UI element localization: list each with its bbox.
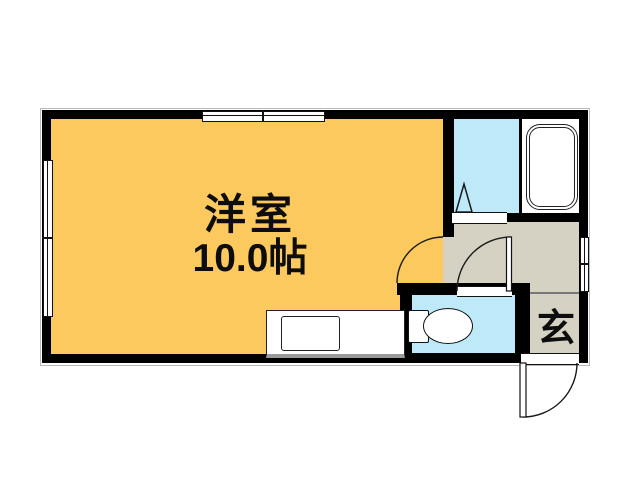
floor-plan: 洋室 10.0帖 玄 (0, 0, 640, 480)
bathroom-door-opening (452, 212, 507, 224)
bathtub-rim (529, 127, 575, 207)
window-top (202, 111, 325, 122)
entrance-door-leaf (520, 363, 526, 417)
window-glass-line (584, 238, 585, 291)
kitchen-sink (281, 316, 340, 351)
window-tick (42, 237, 52, 239)
main-room-label: 洋室 10.0帖 (120, 193, 380, 279)
wall-tub-divider (519, 119, 522, 213)
bathtub (526, 124, 578, 210)
kitchen-counter (266, 310, 405, 358)
window-tick (579, 263, 588, 265)
toilet-door-opening (457, 286, 512, 297)
main-room-size: 10.0帖 (120, 238, 380, 279)
entrance-door-opening (521, 353, 579, 365)
entrance-door-arc (523, 363, 577, 417)
window-glass-line (47, 161, 48, 316)
entrance-label: 玄 (530, 309, 582, 349)
hallway-floor (443, 222, 579, 292)
main-room-name: 洋室 (120, 193, 380, 238)
window-left (43, 160, 53, 317)
window-tick (262, 110, 264, 121)
toilet-bowl (423, 308, 473, 344)
window-glass-line (203, 115, 324, 116)
bathroom-floor (452, 119, 520, 213)
window-right (580, 237, 589, 292)
